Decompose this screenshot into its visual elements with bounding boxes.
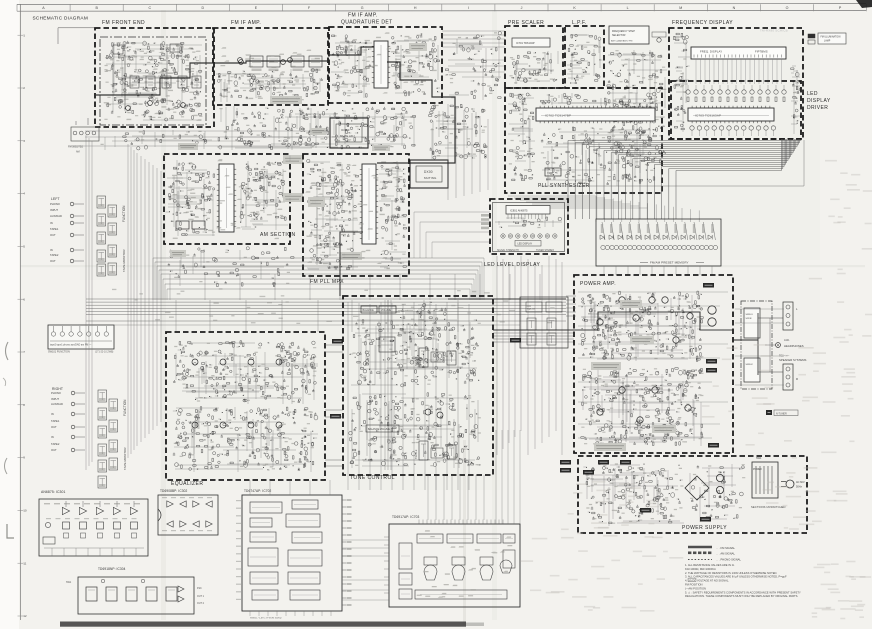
svg-text:9: 9 (23, 456, 25, 460)
svg-text:POWER SUPPLY: POWER SUPPLY (682, 525, 727, 531)
svg-text:DRIVER: DRIVER (807, 105, 828, 111)
svg-text:M: M (679, 6, 682, 10)
svg-text:FM IF AMP.: FM IF AMP. (348, 13, 378, 19)
svg-text:OUT: OUT (51, 425, 57, 429)
svg-text:OUT: OUT (50, 233, 56, 237)
svg-text:FM POSITION: FM POSITION (685, 583, 703, 587)
svg-text:12: 12 (23, 614, 27, 618)
svg-text:10: 10 (23, 509, 27, 513)
svg-text:2: 2 (23, 86, 25, 90)
svg-text:TD6747AP: IC702: TD6747AP: IC702 (244, 489, 271, 493)
svg-text:TD6917AP: IC703: TD6917AP: IC703 (392, 515, 419, 519)
svg-text:LED DISPLAY: LED DISPLAY (518, 243, 533, 246)
svg-text:POWER: POWER (753, 469, 762, 471)
svg-text:TREBLE: TREBLE (415, 356, 418, 366)
svg-text:MUTING: MUTING (424, 176, 437, 180)
svg-text:N: N (733, 6, 736, 10)
svg-text:. . . PHONO SIGNAL: . . . PHONO SIGNAL (716, 558, 741, 562)
svg-text:tape2 tape1 phono aux/DAD am: tape2 tape1 phono aux/DAD am FM --- (50, 344, 92, 347)
svg-text:H: H (414, 6, 417, 10)
svg-text:IN: IN (50, 221, 53, 225)
svg-text:KΩ=1000Ω, MΩ=1000KΩ.: KΩ=1000Ω, MΩ=1000KΩ. (685, 567, 716, 571)
svg-text:FREQ. DISPLAY: FREQ. DISPLAY (700, 50, 722, 54)
svg-text:SECTIONS UNSWITCHED: SECTIONS UNSWITCHED (751, 505, 786, 509)
svg-text:FUNCTION: FUNCTION (123, 399, 127, 416)
svg-text:IC303: IC303 (341, 128, 350, 132)
svg-text:J: J (521, 6, 523, 10)
svg-text:BALANCE VOLUME: BALANCE VOLUME (368, 428, 390, 431)
svg-text:REGULATIONS. THESE COMPONENTS: REGULATIONS. THESE COMPONENTS MUST ONLY … (685, 594, 798, 598)
svg-text:LEFT: LEFT (51, 197, 60, 201)
svg-text:R: R (796, 377, 798, 381)
svg-text:high-cut: high-cut (527, 308, 535, 311)
svg-text:SW501: SW501 (746, 314, 754, 316)
svg-text:SW1: SW1 (756, 457, 762, 460)
svg-text:SPKR: SPKR (746, 318, 752, 320)
svg-text:OUT 1: OUT 1 (197, 595, 205, 598)
svg-text:FSC: FSC (197, 587, 202, 590)
svg-text:4: 4 (23, 192, 25, 196)
svg-text:. . . AM SIGNAL: . . . AM SIGNAL (716, 552, 735, 556)
svg-text:OUT: OUT (51, 448, 57, 452)
svg-text:FM/AM PRESET MEMORY: FM/AM PRESET MEMORY (650, 261, 689, 265)
svg-text:FREQUENCY STEP: FREQUENCY STEP (612, 30, 635, 33)
svg-text:50Hz: 50Hz (796, 486, 803, 489)
svg-text:FM IF AMP.: FM IF AMP. (231, 20, 261, 26)
svg-text:C: C (148, 6, 151, 10)
svg-text:G: G (361, 6, 364, 10)
svg-text:SW502: SW502 (746, 364, 754, 366)
svg-text:TM-RX80 SCH/CB: TM-RX80 SCH/CB (760, 29, 788, 33)
svg-text:TAPE1: TAPE1 (51, 419, 60, 423)
svg-text:3. ALL CAPACITANCES VALUES AR: 3. ALL CAPACITANCES VALUES ARE IN μF UNL… (685, 575, 787, 579)
svg-text:1: 1 (23, 33, 25, 37)
svg-text:DX00: DX00 (424, 170, 433, 174)
svg-text:TAPE MONITOR: TAPE MONITOR (123, 447, 127, 470)
svg-text:TUNED STEREO: TUNED STEREO (536, 250, 554, 252)
svg-text:3: 3 (23, 139, 25, 143)
svg-text:4. (V) DC VOLTAGE AT NO SIGNA: 4. (V) DC VOLTAGE AT NO SIGNAL. (685, 579, 729, 583)
svg-text:7408: 7408 (547, 171, 553, 175)
svg-text:FREQUENCY DISPLAY: FREQUENCY DISPLAY (672, 20, 733, 26)
svg-text:5. ⚠ : SAFETY REQUIREMENTS CO: 5. ⚠ : SAFETY REQUIREMENTS COMPONENTS IN… (685, 590, 801, 594)
svg-text:IC701 TD6104P: IC701 TD6104P (516, 41, 535, 45)
svg-text:TD6918NP: IC304: TD6918NP: IC304 (98, 567, 126, 571)
svg-text:MUTE ADJ: MUTE ADJ (340, 134, 355, 138)
svg-text:AUX/DAD: AUX/DAD (51, 402, 63, 406)
svg-text:1. ALL RESISTANCE VALUES ARE: 1. ALL RESISTANCE VALUES ARE IN Ω. (685, 563, 735, 567)
svg-text:O: O (786, 6, 789, 10)
svg-text:BASS: BASS (443, 356, 446, 363)
svg-text:SW00L / 1-6TC 27 WON 100KΩ: SW00L / 1-6TC 27 WON 100KΩ (250, 618, 282, 620)
svg-text:SW1: SW1 (66, 581, 72, 584)
svg-text:SCHEMATIC DIAGRAM: SCHEMATIC DIAGRAM (33, 16, 89, 21)
svg-text:L: L (627, 6, 629, 10)
svg-text:6: 6 (23, 297, 25, 301)
svg-text:SPEAKER SYSTEMS: SPEAKER SYSTEMS (779, 358, 806, 362)
svg-text:PHONO: PHONO (51, 391, 61, 395)
svg-text:LED LEVEL DISPLAY: LED LEVEL DISPLAY (484, 262, 541, 268)
svg-text:5: 5 (23, 245, 25, 249)
svg-text:DISPLAY: DISPLAY (807, 98, 831, 104)
svg-text:AUX/DAD: AUX/DAD (50, 214, 62, 218)
svg-text:IN: IN (51, 435, 54, 439)
svg-text:OUT 2: OUT 2 (197, 602, 205, 605)
svg-text:TD6908BP: IC302: TD6908BP: IC302 (160, 489, 187, 493)
svg-text:TAPE MONITOR: TAPE MONITOR (122, 249, 126, 272)
svg-text:. . . FM SIGNAL: . . . FM SIGNAL (716, 546, 735, 550)
svg-text:PHONO: PHONO (50, 202, 60, 206)
svg-text:VOLUME: VOLUME (381, 309, 392, 312)
svg-text:AC 60V: AC 60V (796, 481, 805, 484)
svg-text:D: D (201, 6, 204, 10)
svg-text:TAPE2: TAPE2 (51, 442, 60, 446)
svg-text:IC702 TC9147BP: IC702 TC9147BP (545, 114, 571, 118)
svg-text:ANT1-A AM ANT2 FM: ANT1-A AM ANT2 FM (611, 40, 632, 43)
svg-text:INPUT: INPUT (51, 397, 59, 401)
svg-text:2. THE WATTAGE OF RESISTORS I: 2. THE WATTAGE OF RESISTORS IS 1/4W UNLE… (685, 571, 777, 575)
svg-text:SIGNAL STRENGTH: SIGNAL STRENGTH (497, 249, 519, 252)
svg-text:IN: IN (50, 248, 53, 252)
svg-text:IC703 TC9163AP: IC703 TC9163AP (695, 114, 721, 118)
svg-text:EQUALIZER: EQUALIZER (171, 481, 203, 487)
svg-text:AM: AM (76, 151, 80, 154)
svg-text:I: I (468, 6, 469, 10)
svg-text:(171-22-10.2WB): (171-22-10.2WB) (95, 351, 114, 354)
svg-text:JA01: JA01 (784, 339, 790, 342)
svg-text:TAPE2: TAPE2 (50, 253, 59, 257)
svg-text:8: 8 (23, 403, 25, 407)
svg-text:TREBLE: TREBLE (415, 449, 418, 459)
svg-text:QUADRATURE DET: QUADRATURE DET (341, 20, 393, 26)
svg-text:FM FRONT END: FM FRONT END (102, 20, 145, 26)
svg-text:IN: IN (51, 412, 54, 416)
svg-text:OUT: OUT (50, 259, 56, 263)
svg-text:INPUT: INPUT (50, 208, 58, 212)
svg-text:SW101 FUNCTION: SW101 FUNCTION (48, 351, 70, 354)
svg-text:RIGHT: RIGHT (52, 387, 63, 391)
svg-text:FUNCTION: FUNCTION (122, 205, 126, 222)
svg-text:LAMP: LAMP (824, 40, 831, 43)
svg-text:7: 7 (23, 350, 25, 354)
svg-text:FM ILLUMINATION: FM ILLUMINATION (821, 36, 841, 39)
svg-text:FIP7BMS: FIP7BMS (755, 50, 768, 54)
svg-text:TAPE1: TAPE1 (50, 227, 59, 231)
svg-text:11: 11 (23, 561, 26, 565)
svg-text:IC801 AN6875: IC801 AN6875 (510, 209, 528, 213)
svg-text:BASS: BASS (443, 451, 446, 458)
svg-text:BALANCE: BALANCE (363, 309, 375, 312)
svg-text:AN6875: IC301: AN6875: IC301 (41, 490, 66, 494)
svg-text:|---AM POSITION: |---AM POSITION (685, 586, 706, 590)
svg-text:POWER AMP.: POWER AMP. (580, 281, 616, 287)
svg-text:SELECTOR: SELECTOR (612, 34, 626, 37)
svg-text:N-TUNER: N-TUNER (776, 412, 787, 415)
svg-text:LED: LED (807, 91, 818, 97)
